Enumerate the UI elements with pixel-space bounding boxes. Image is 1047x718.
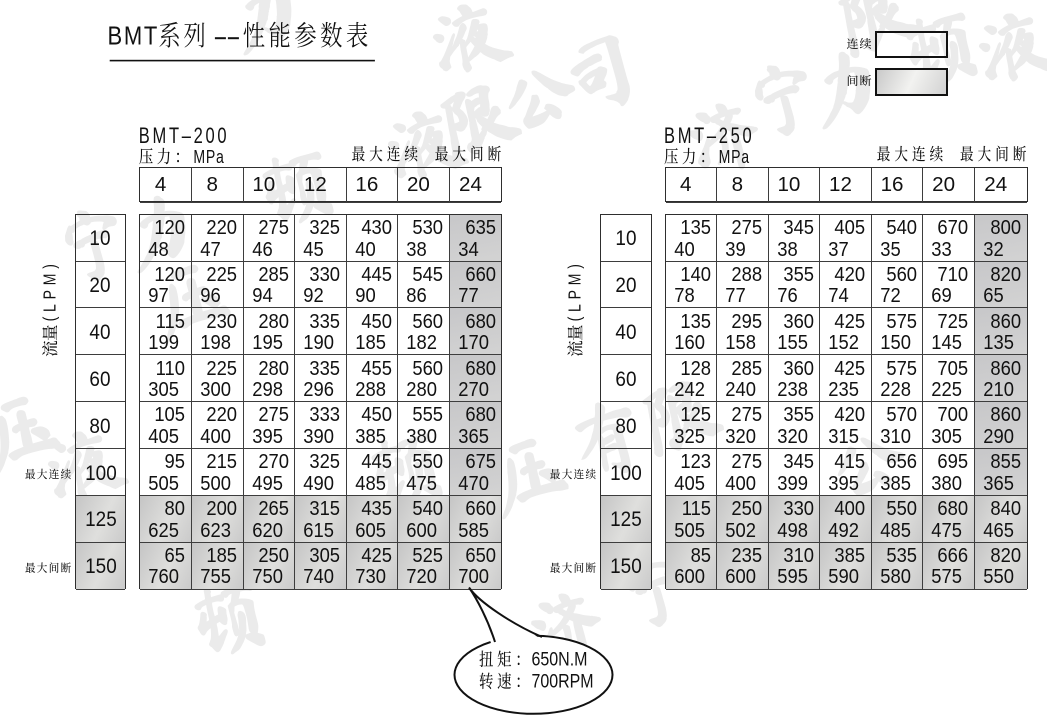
svg-text:BMT–200: BMT–200	[139, 124, 229, 149]
svg-text:BMT–250: BMT–250	[664, 124, 754, 149]
svg-text:(LPM): (LPM)	[566, 259, 585, 321]
svg-text:650N.M: 650N.M	[532, 649, 588, 670]
svg-text:MPa: MPa	[193, 146, 224, 167]
svg-text:BMT: BMT	[108, 22, 159, 51]
svg-text:MPa: MPa	[719, 146, 750, 167]
svg-text:700RPM: 700RPM	[532, 671, 594, 692]
svg-text:(LPM): (LPM)	[41, 259, 60, 321]
